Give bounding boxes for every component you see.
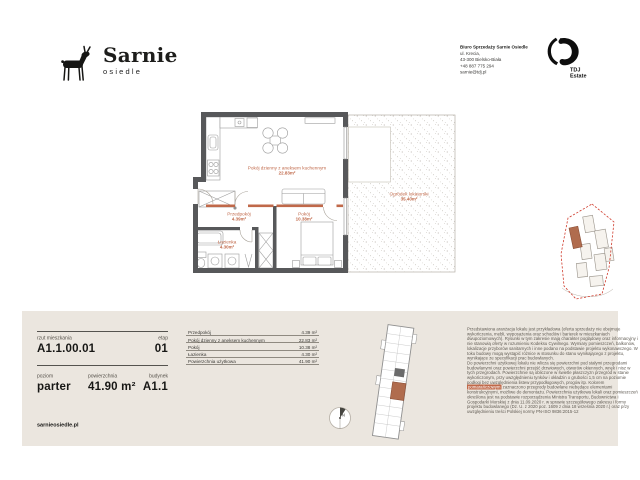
brand-name: Sarnie bbox=[103, 45, 178, 65]
room-label-bedroom: Pokój 10.38m² bbox=[281, 211, 327, 233]
north-label: N bbox=[342, 413, 345, 418]
tdj-letter-icon bbox=[546, 36, 580, 68]
building-value: A1.1 bbox=[128, 381, 168, 393]
brand-logo: Sarnie osiedle bbox=[55, 45, 178, 85]
building-key-plan bbox=[366, 324, 422, 442]
brochure-page: Sarnie osiedle Biuro Sprzedaży Sarnie Os… bbox=[0, 0, 640, 480]
terrace bbox=[349, 127, 391, 182]
contact-email: sarnie@tdj.pl bbox=[460, 69, 550, 75]
table-row: Przedpokój4.39 m² bbox=[186, 329, 319, 336]
compass-icon: N bbox=[326, 404, 354, 432]
table-row: Pokój dzienny z aneksem kuchennym22.83 m… bbox=[186, 336, 319, 343]
stage-label: etap bbox=[118, 336, 168, 341]
info-panel: rzut mieszkania etap A1.1.00.01 01 pozio… bbox=[22, 311, 618, 446]
floor-plan: Pokój dzienny z aneksem kuchennym 22.83m… bbox=[185, 105, 460, 290]
deer-icon bbox=[55, 45, 95, 85]
level-value: parter bbox=[37, 381, 71, 393]
room-label-bathroom: Łazienka 4.30m² bbox=[202, 239, 252, 261]
garden-label: Ogródek lokatorski 35.40m² bbox=[369, 191, 449, 213]
divider bbox=[37, 331, 168, 332]
room-label-hall: Przedpokój 4.39m² bbox=[211, 211, 267, 233]
highlighted-unit bbox=[390, 382, 406, 401]
building-label: budynek bbox=[118, 374, 168, 379]
disclaimer-text: Przedstawiona aranżacja lokalu jest przy… bbox=[467, 327, 639, 443]
unit-label: rzut mieszkania bbox=[37, 336, 107, 341]
tdj-name: Estate bbox=[570, 73, 610, 79]
rooms-table: Przedpokój4.39 m² Pokój dzienny z anekse… bbox=[186, 329, 319, 365]
level-label: poziom bbox=[37, 374, 82, 379]
site-plan bbox=[556, 202, 628, 306]
table-row: Powierzchnia użytkowa41.90 m² bbox=[186, 358, 319, 365]
highlighted-building bbox=[569, 226, 582, 248]
room-label-living: Pokój dzienny z aneksem kuchennym 22.83m… bbox=[232, 165, 342, 187]
website-link: sarnieosiedle.pl bbox=[37, 422, 157, 430]
contact-block: Biuro Sprzedaży Sarnie Osiedle ul. Kreci… bbox=[460, 44, 550, 89]
stairwell bbox=[394, 368, 405, 377]
stage-value: 01 bbox=[128, 343, 168, 355]
tdj-logo: TDJ Estate bbox=[546, 36, 606, 86]
table-row: Pokój10.38 m² bbox=[186, 343, 319, 350]
unit-id: A1.1.00.01 bbox=[37, 343, 95, 355]
table-row: Łazienka4.30 m² bbox=[186, 351, 319, 358]
brand-subtitle: osiedle bbox=[103, 67, 178, 76]
divider bbox=[37, 365, 168, 366]
